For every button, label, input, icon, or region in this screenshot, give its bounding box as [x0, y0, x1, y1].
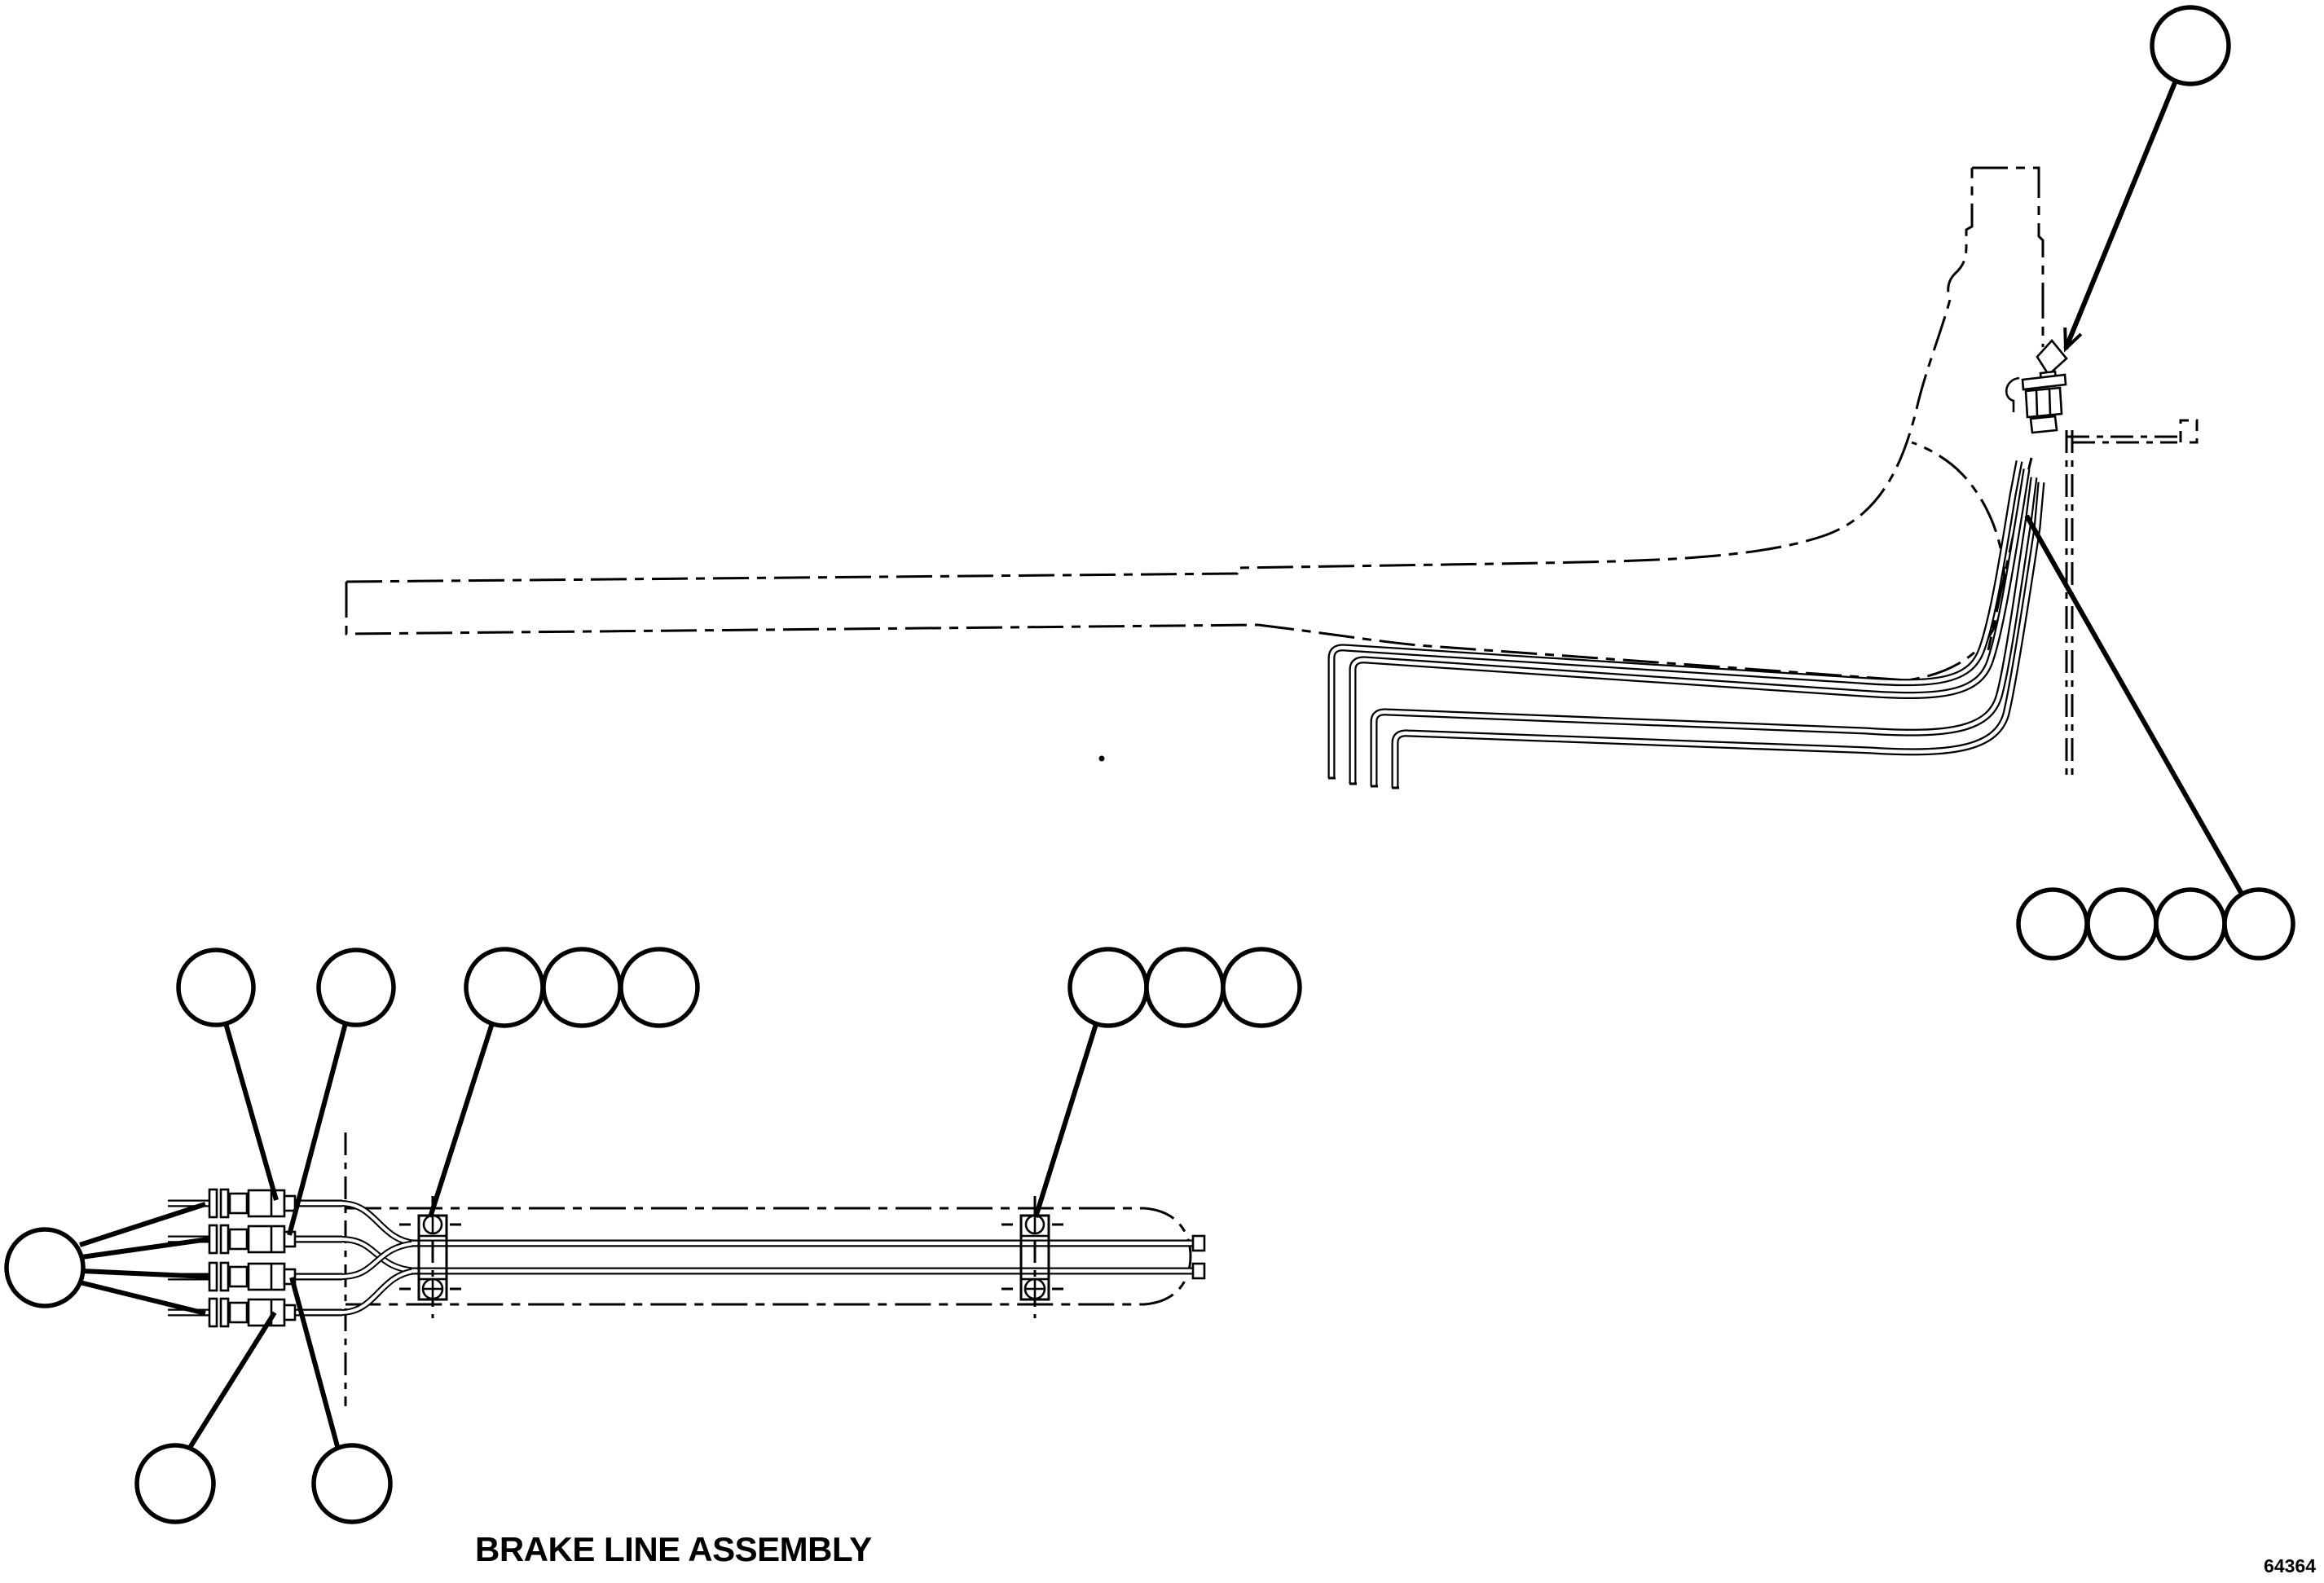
fitting-hex-nut: [249, 1226, 284, 1252]
balloon-f[interactable]: [1070, 949, 1147, 1026]
balloon-right-4[interactable]: [2225, 890, 2293, 958]
tube-fitting-1: [168, 1189, 342, 1217]
balloon-left-main-leader: [81, 1271, 209, 1277]
balloon-right-1[interactable]: [2018, 890, 2087, 958]
balloon-f-leader: [1036, 1024, 1096, 1217]
fitting-washer: [209, 1299, 217, 1326]
balloon-c-leader: [430, 1023, 492, 1217]
fitting-washer: [221, 1225, 228, 1253]
tube-end-cap: [1193, 1264, 1204, 1278]
fitting-washer: [221, 1263, 228, 1291]
balloon-a-leader: [226, 1023, 276, 1200]
balloon-e[interactable]: [621, 949, 698, 1026]
frame-bar-top-and-pillar-left-outline: [346, 168, 1972, 582]
balloon-j[interactable]: [314, 1445, 390, 1522]
fitting-body: [230, 1194, 247, 1213]
diagram-page: BRAKE LINE ASSEMBLY 64364: [0, 0, 2324, 1583]
fitting-washer: [221, 1189, 228, 1217]
fitting-body: [230, 1303, 247, 1322]
balloon-a[interactable]: [178, 950, 253, 1025]
fitting-washer: [209, 1263, 217, 1291]
balloon-h[interactable]: [1223, 949, 1300, 1026]
brake-line-assembly-diagram: BRAKE LINE ASSEMBLY 64364: [0, 0, 2324, 1583]
brake-tube-bundle: [1328, 461, 2041, 788]
mounting-bracket-phantom: [2067, 420, 2197, 781]
pillar-top-and-right-outline: [1972, 168, 2043, 347]
fitting-body: [230, 1267, 247, 1286]
balloon-b[interactable]: [319, 950, 394, 1025]
balloon-left-main[interactable]: [7, 1229, 83, 1306]
fitting-hex-nut: [249, 1264, 284, 1290]
balloon-left-main-leader: [81, 1239, 209, 1257]
balloon-g[interactable]: [1147, 949, 1223, 1026]
fitting-washer: [209, 1225, 217, 1253]
drawing-number: 64364: [2264, 1555, 2316, 1576]
balloon-hose-fitting-leader: [2066, 81, 2176, 349]
reference-dot: [1099, 756, 1105, 762]
tube-runs: [412, 1236, 1204, 1278]
balloon-i[interactable]: [137, 1445, 213, 1522]
balloon-hose-fitting[interactable]: [2152, 7, 2229, 84]
balloon-j-leader: [292, 1277, 338, 1449]
fitting-collar: [284, 1305, 295, 1320]
drawing-title: BRAKE LINE ASSEMBLY: [475, 1530, 872, 1568]
balloon-d[interactable]: [544, 949, 620, 1026]
balloon-right-3[interactable]: [2156, 890, 2225, 958]
balloon-right-2[interactable]: [2088, 890, 2156, 958]
brake-hose-fitting: [2006, 341, 2067, 433]
fitting-body: [230, 1229, 247, 1249]
tube-end-cap: [1193, 1236, 1204, 1251]
clamp-blocks: [399, 1196, 1068, 1318]
upper-view: [346, 168, 2197, 788]
balloon-i-leader: [188, 1313, 275, 1450]
fitting-collar: [284, 1196, 295, 1211]
callout-balloons: [7, 7, 2293, 1522]
bundle-phantom-outline: [346, 1208, 1191, 1304]
balloon-c[interactable]: [466, 949, 543, 1026]
fitting-washer: [221, 1299, 228, 1326]
tube-funnel: [341, 1203, 417, 1313]
fitting-washer: [209, 1189, 217, 1217]
frame-bar-left-and-bottom-outline: [346, 582, 1258, 634]
fitting-hex-nut: [249, 1190, 284, 1216]
balloon-left-main-leader: [80, 1282, 205, 1313]
balloon-right-4-leader: [2027, 516, 2242, 894]
